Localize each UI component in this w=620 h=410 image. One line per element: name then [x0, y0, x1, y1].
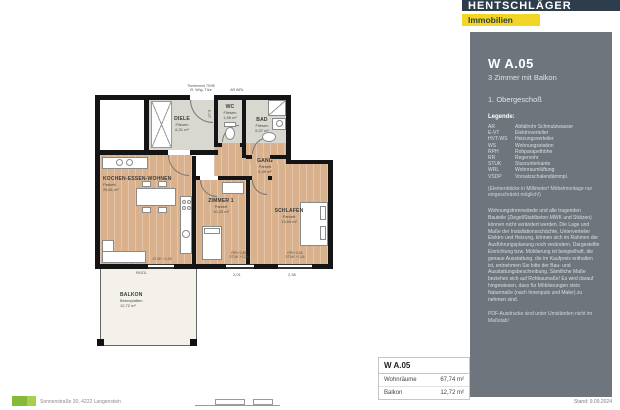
sink-icon — [126, 159, 133, 166]
wall — [218, 176, 246, 180]
unit-floor: 1. Obergeschoß — [488, 95, 542, 104]
room-label-gang: GANG Parkett 4,49 m² — [248, 158, 282, 174]
window-schlafen — [278, 264, 312, 269]
pillow — [204, 228, 220, 234]
room-label-wc: WC Fliesen 1,96 m² — [218, 104, 242, 120]
cooktop-icon — [182, 206, 186, 210]
unit-title: W A.05 — [488, 56, 598, 71]
shower — [268, 100, 286, 116]
room-label-bad: BAD Fliesen 5,37 m² — [248, 117, 276, 133]
sink-icon — [116, 159, 123, 166]
cooktop-icon — [187, 206, 191, 210]
room-label-kochen: KOCHEN-ESSEN-WOHNEN Parkett 25,61 m² — [103, 176, 191, 192]
wall — [268, 176, 272, 180]
rigol-label: RIGOL — [136, 271, 156, 275]
scale-bar — [195, 399, 280, 406]
shaft-label-evt: E-VT — [207, 104, 211, 124]
balcony-door-stuk: STUK +2,26 — [148, 257, 176, 261]
balcony-post — [190, 339, 197, 346]
page: HENTSCHLÄGER Immobilien — [0, 0, 620, 410]
cooktop-icon — [182, 200, 186, 204]
wall — [328, 160, 333, 269]
legend-table: ARAbfallrohr Schmutzwasser E-VTElektrove… — [488, 124, 573, 180]
pillow — [320, 226, 326, 240]
shaft-label-ar-wrl: AR WRL — [222, 88, 252, 92]
wall — [174, 264, 226, 269]
sink-icon — [182, 230, 190, 238]
schlafen-window-annotation: RPH 0,85 STUK +2,26 — [278, 251, 312, 259]
wall — [97, 264, 148, 269]
pdf-note: PDF-Ausdrucke sind unter Umständen nicht… — [488, 311, 598, 323]
room-label-diele: DIELE Fliesen 6,31 m² — [165, 116, 199, 132]
window-zimmer1 — [226, 264, 254, 269]
wall — [192, 156, 196, 264]
chair — [158, 207, 167, 213]
balcony-door — [148, 264, 174, 269]
unit-subtitle: 3 Zimmer mit Balkon — [488, 73, 598, 82]
room-label-balkon: BALKON Betonplatten 12,72 m² — [120, 292, 170, 308]
wall — [214, 143, 222, 147]
washing-machine-drum-icon — [276, 120, 283, 127]
wall — [312, 264, 333, 269]
pillow — [320, 206, 326, 220]
summary-title: W A.05 — [379, 358, 469, 374]
wall — [100, 150, 168, 155]
room-label-schlafen: SCHLAFEN Parkett 13,50 m² — [268, 208, 310, 224]
entrance-annotation: Türelement 70/95 El. Whg.-Türe — [182, 84, 220, 92]
wall — [190, 150, 218, 155]
dim-zimmer1-window: 2,01 — [233, 272, 241, 277]
dim-schlafen-window: 2,38 — [288, 272, 296, 277]
summary-row: Wohnräume67,74 m² — [379, 374, 469, 387]
legend-title: Legende: — [488, 114, 598, 120]
washbasin-icon — [262, 132, 276, 142]
zimmer1-window-annotation: RPH 0,85 STUK +2,26 — [222, 251, 256, 259]
plan-date: Stand: 9.09.2024 — [512, 399, 612, 405]
wall — [286, 160, 332, 164]
sofa — [102, 251, 146, 263]
wall — [286, 95, 291, 164]
wall — [95, 95, 100, 269]
wall — [254, 264, 278, 269]
summary-row: Balkon12,72 m² — [379, 387, 469, 399]
legend-row: VSDPVorsatzschalendämmpl. — [488, 174, 573, 180]
element-note: (Elementdicke in Millimeter! Möbelmontag… — [488, 186, 598, 198]
wall — [240, 143, 246, 147]
info-sidebar: W A.05 3 Zimmer mit Balkon 1. Obergescho… — [470, 32, 612, 397]
area-summary-table: W A.05 Wohnräume67,74 m² Balkon12,72 m² — [378, 357, 470, 400]
wall — [242, 100, 246, 158]
footer-address: Sonnenstraße 30, 4222 Langenstein — [40, 399, 121, 405]
wall — [144, 95, 149, 155]
wardrobe — [222, 182, 244, 194]
balcony-post — [97, 339, 104, 346]
kitchen-counter — [102, 157, 148, 169]
legal-paragraph: Wohnungstrennwände und alle tragenden Ba… — [488, 208, 600, 303]
chair — [142, 207, 151, 213]
toilet-icon — [225, 127, 235, 140]
room-label-zimmer1: ZIMMER 1 Parkett 10,20 m² — [198, 198, 244, 214]
cooktop-icon — [187, 200, 191, 204]
kitchen-block — [180, 196, 192, 254]
company-logo — [12, 396, 36, 406]
